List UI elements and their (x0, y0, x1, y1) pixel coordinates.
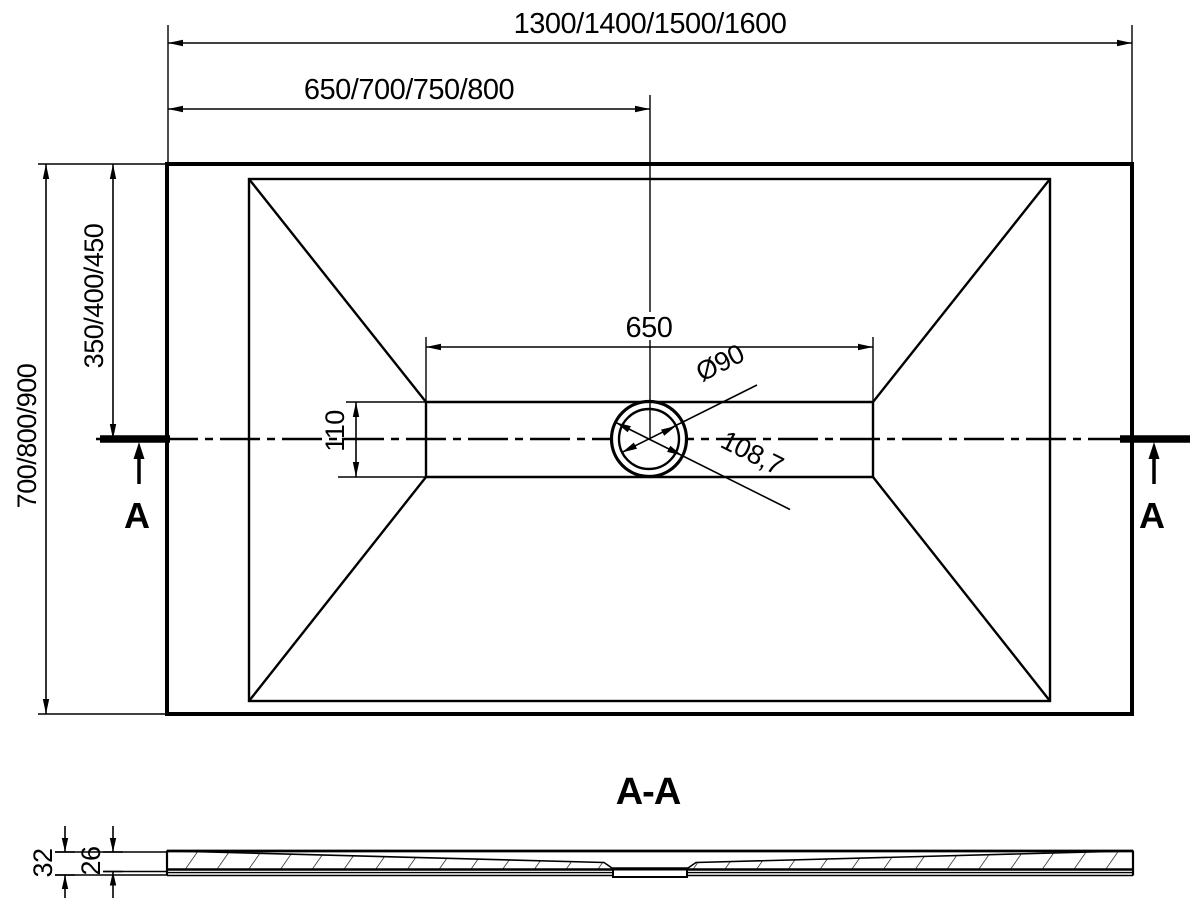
dim-channel-width-label: 110 (320, 410, 350, 452)
section-hatch-area (167, 851, 1133, 870)
slope-diagonal-top-left (249, 179, 426, 402)
section-profile (167, 851, 1133, 877)
dim-thickness-base-label: 26 (76, 846, 106, 875)
section-view: A-A 32 (28, 771, 1133, 898)
dim-depth-to-drain: 350/400/450 (79, 164, 116, 439)
dim-thickness-overall-label: 32 (28, 848, 58, 877)
section-title: A-A (616, 771, 681, 813)
section-marker-right-label: A (1139, 495, 1165, 536)
section-marker-left-label: A (124, 495, 150, 536)
dim-thickness-base: 26 (76, 826, 167, 898)
dim-overall-width-label: 1300/1400/1500/1600 (514, 8, 787, 40)
dim-overall-depth-label: 700/800/900 (12, 364, 42, 509)
plan-view: 1300/1400/1500/1600 650/700/750/800 700/… (12, 8, 1194, 714)
section-drain-boss (613, 870, 687, 878)
drawing-page: 1300/1400/1500/1600 650/700/750/800 700/… (0, 0, 1200, 904)
dim-depth-to-drain-label: 350/400/450 (79, 224, 109, 369)
dim-channel-length-label: 650 (626, 312, 673, 344)
slope-diagonal-bottom-left (249, 477, 426, 701)
slope-diagonal-bottom-right (873, 477, 1050, 701)
dim-drain-diameter-label: Ø90 (691, 338, 749, 387)
section-cut-marker-left: A (100, 439, 170, 536)
dim-width-to-drain: 650/700/750/800 (168, 74, 650, 112)
dim-drain-diagonal-label: 108,7 (716, 425, 788, 481)
shower-tray-technical-drawing: 1300/1400/1500/1600 650/700/750/800 700/… (0, 0, 1200, 904)
slope-diagonal-top-right (873, 179, 1050, 402)
dim-width-to-drain-label: 650/700/750/800 (304, 74, 514, 106)
